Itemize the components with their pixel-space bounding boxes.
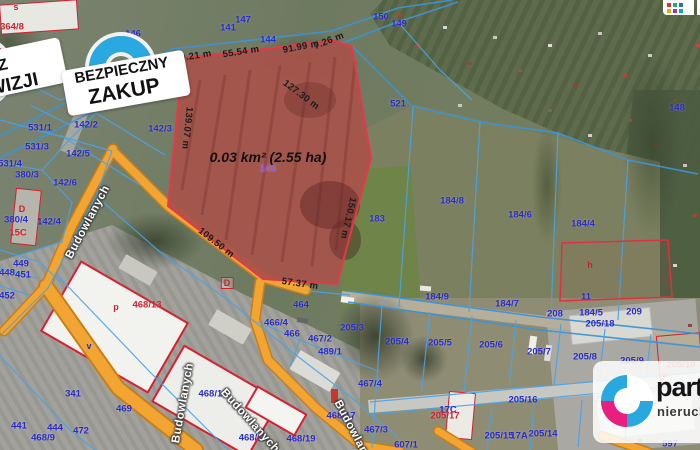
agency-logo-icon: [600, 374, 654, 428]
aerial-map[interactable]: 9.21 m55.54 m91.99 m7.26 m127.30 m139.07…: [0, 0, 700, 450]
building-205-17: [445, 391, 476, 440]
agency-logo-word2: nieruch: [657, 404, 700, 419]
vehicle: [420, 286, 431, 292]
trees-cluster: [532, 125, 562, 245]
trees-cluster: [400, 335, 448, 383]
building-topleft: [0, 0, 79, 35]
trees-cluster: [622, 50, 682, 240]
trees-cluster: [105, 212, 205, 270]
parcel-area-label: 0.03 km² (2.55 ha): [210, 149, 327, 165]
layers-icon[interactable]: [663, 0, 694, 15]
terrain-field-183: [333, 165, 420, 308]
trees-cluster: [258, 32, 353, 80]
agency-logo-word1: partn: [656, 372, 700, 403]
vehicle-container: [331, 389, 338, 403]
shed-roofs: [398, 14, 402, 17]
